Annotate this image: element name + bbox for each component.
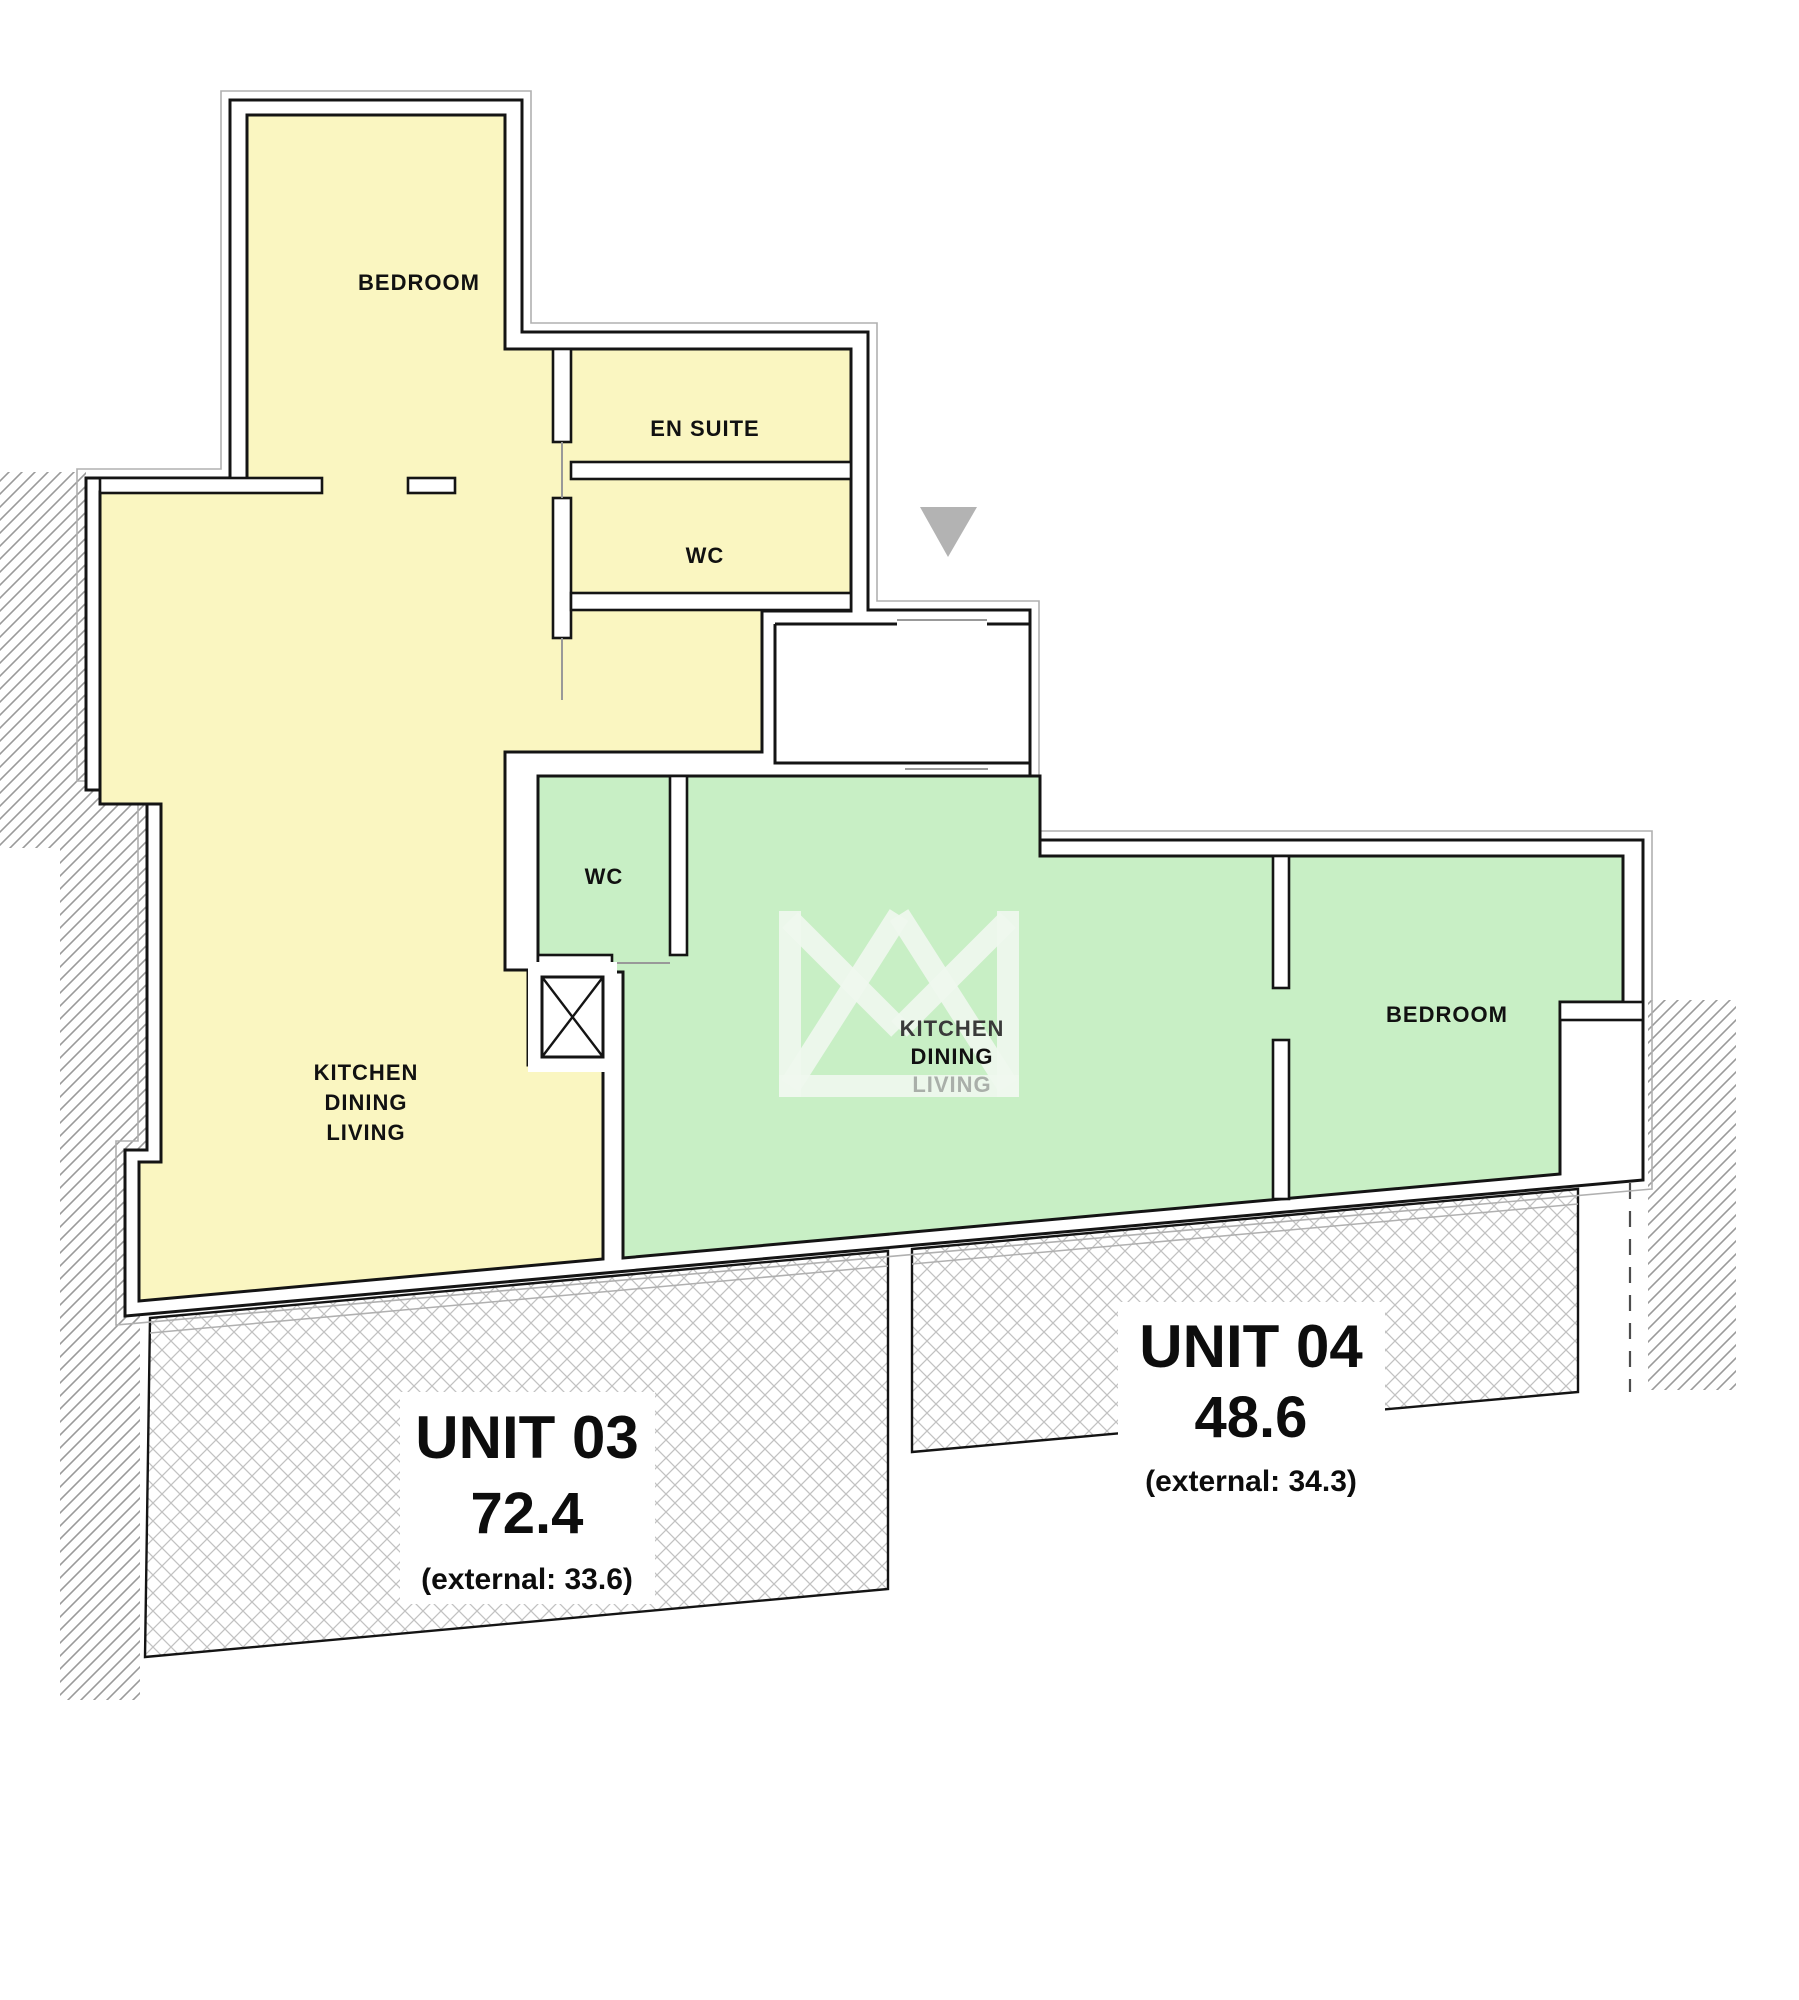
unit04-external: (external: 34.3) (1145, 1465, 1357, 1498)
room-label-living-u04: LIVING (912, 1072, 991, 1097)
room-label-wc-u04: WC (585, 864, 624, 889)
room-label-living-u03: LIVING (326, 1120, 405, 1145)
wall-ensuite-wc (571, 462, 851, 479)
room-label-ensuite-u03: EN SUITE (650, 416, 759, 441)
room-label-kitchen-u03: KITCHEN (314, 1060, 419, 1085)
wall-bedroom-notch (1560, 1002, 1643, 1020)
right-site-hatch (1648, 1000, 1736, 1390)
wall-wc04-right (670, 776, 687, 955)
unit03-area: 72.4 (471, 1481, 584, 1546)
room-label-bedroom-u03: BEDROOM (358, 270, 480, 295)
unit04-label: UNIT 04 (1139, 1313, 1363, 1380)
wall-hall-wc (553, 498, 571, 638)
wall-wc-bottom (571, 593, 851, 610)
room-label-bedroom-u04: BEDROOM (1386, 1002, 1508, 1027)
wall-kitchen-bedroom-lower (1273, 1040, 1289, 1199)
unit04-area: 48.6 (1195, 1385, 1308, 1450)
wall-kitchen-top-west (100, 478, 322, 493)
unit03-label: UNIT 03 (415, 1404, 638, 1471)
unit03-external: (external: 33.6) (421, 1563, 633, 1596)
lift-shaft (528, 962, 617, 1072)
floor-plan-page: { "plan": { "unit03": { "label": "UNIT 0… (0, 0, 1799, 2000)
entrance-triangle-icon (920, 507, 977, 557)
wall-kitchen-top-stub (408, 478, 455, 493)
room-label-dining-u04: DINING (911, 1044, 994, 1069)
room-label-kitchen-u04: KITCHEN (900, 1016, 1005, 1041)
room-label-dining-u03: DINING (325, 1090, 408, 1115)
room-label-wc-u03: WC (686, 543, 725, 568)
wall-kitchen-bedroom-upper (1273, 856, 1289, 988)
floor-plan-svg: BEDROOM EN SUITE WC KITCHEN DINING LIVIN… (0, 0, 1799, 2000)
corridor (775, 624, 1030, 763)
wall-hall-ensuite-upper (553, 349, 571, 442)
